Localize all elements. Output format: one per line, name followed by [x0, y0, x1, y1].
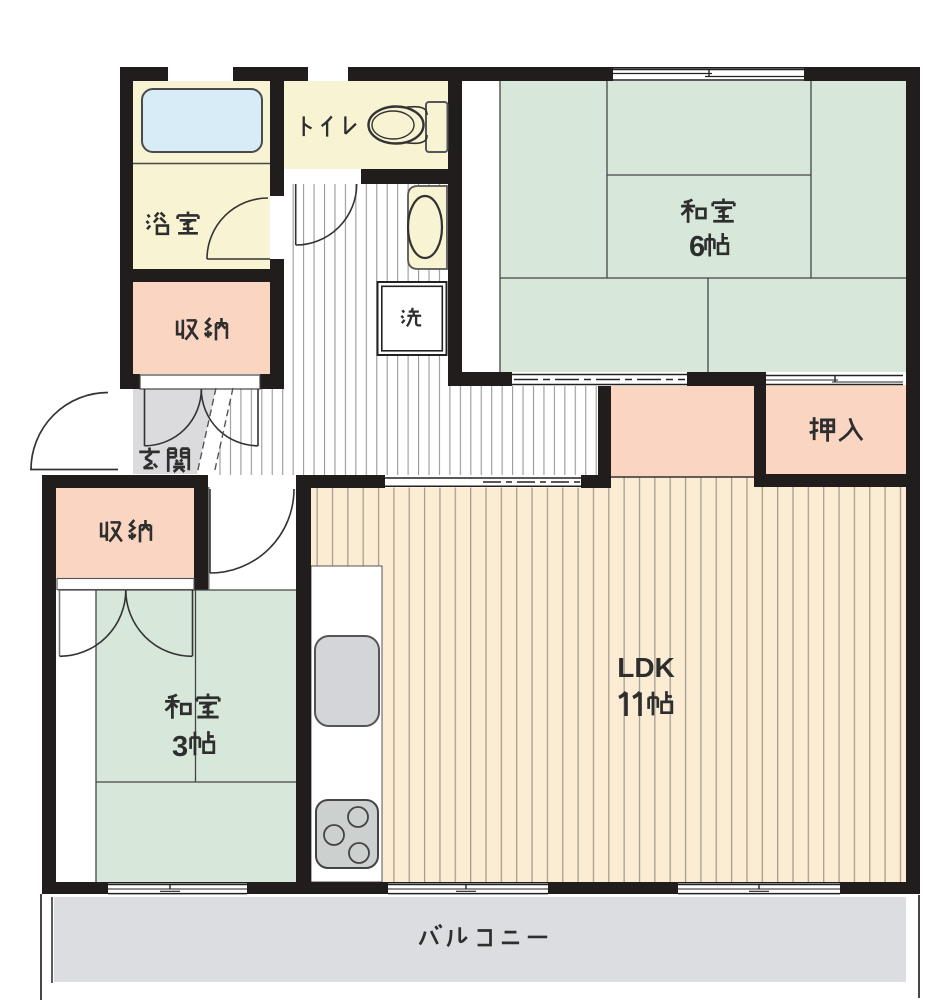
svg-text:LDK: LDK	[617, 652, 675, 683]
svg-text:3: 3	[172, 731, 188, 763]
svg-text:6: 6	[689, 231, 705, 263]
